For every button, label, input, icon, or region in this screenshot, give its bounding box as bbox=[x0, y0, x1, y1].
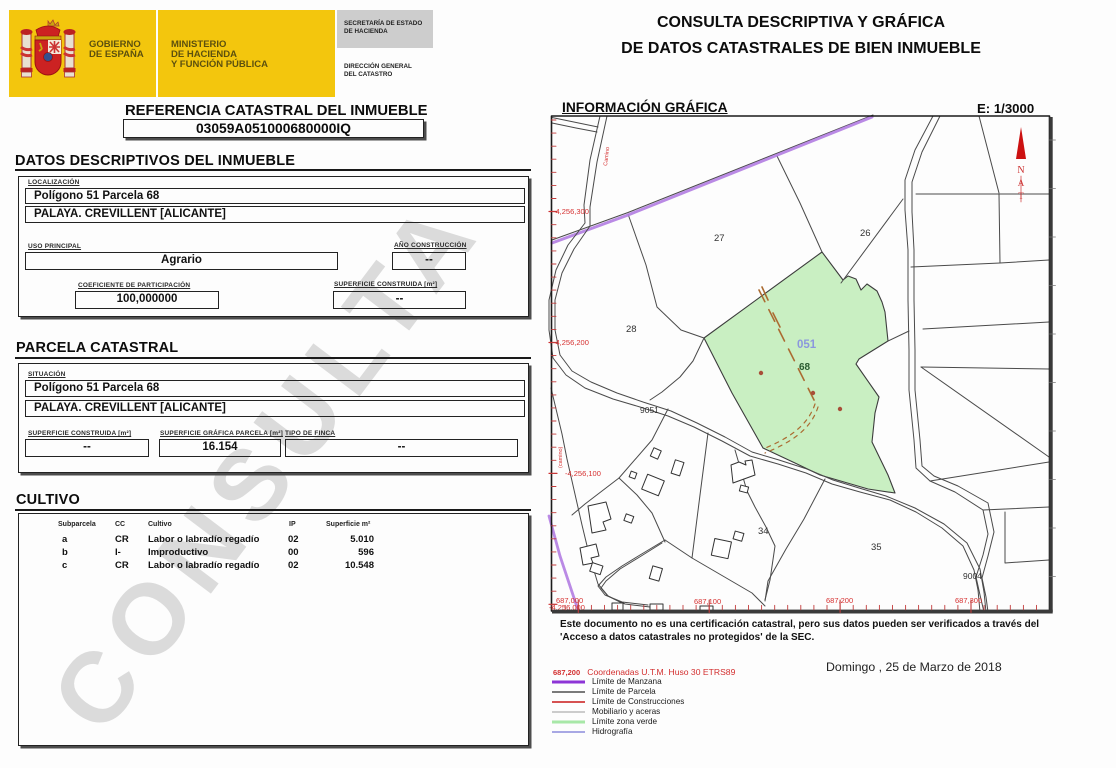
svg-text:26: 26 bbox=[860, 228, 871, 239]
svg-text:(camino): (camino) bbox=[558, 446, 564, 468]
svg-text:Camino: Camino bbox=[603, 147, 611, 167]
svg-text:-4,256,300: -4,256,300 bbox=[553, 207, 589, 216]
svg-text:9004: 9004 bbox=[963, 571, 982, 581]
svg-text:35: 35 bbox=[871, 542, 882, 553]
svg-text:34: 34 bbox=[758, 526, 769, 537]
svg-text:051: 051 bbox=[797, 339, 817, 351]
svg-text:687,000: 687,000 bbox=[556, 596, 583, 605]
svg-text:68: 68 bbox=[799, 362, 811, 373]
svg-text:28: 28 bbox=[626, 324, 637, 335]
svg-text:-4,256,100: -4,256,100 bbox=[565, 469, 601, 478]
svg-text:N: N bbox=[1017, 165, 1024, 176]
svg-text:27: 27 bbox=[714, 233, 725, 244]
svg-text:687,300: 687,300 bbox=[955, 596, 982, 605]
svg-text:9051: 9051 bbox=[640, 405, 659, 415]
svg-text:-4,256,200: -4,256,200 bbox=[553, 338, 589, 347]
svg-text:687,100: 687,100 bbox=[694, 597, 721, 606]
